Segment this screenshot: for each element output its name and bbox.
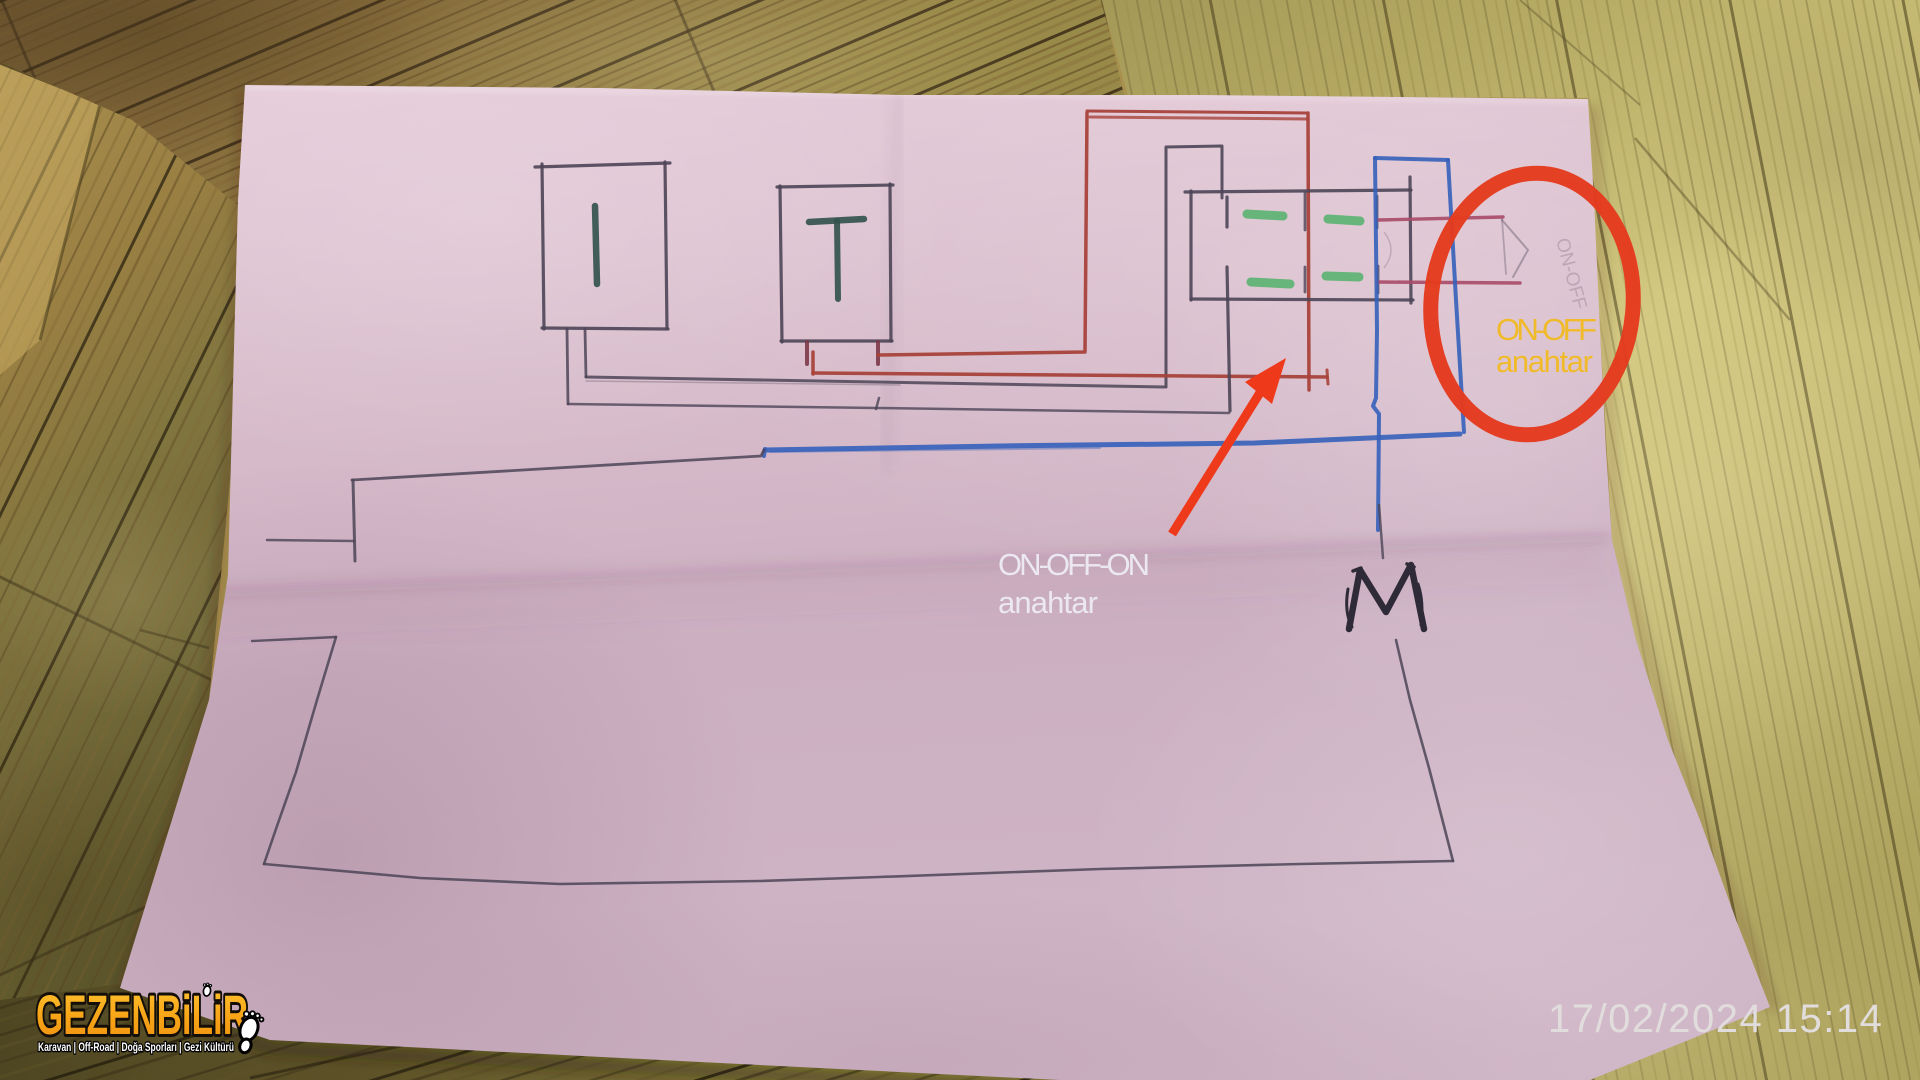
svg-text:17/02/2024 15:14: 17/02/2024 15:14	[1548, 997, 1883, 1041]
svg-text:ON-OFF-ON: ON-OFF-ON	[998, 547, 1150, 582]
svg-text:GEZENBiLiR: GEZENBiLiR	[36, 983, 248, 1046]
svg-text:anahtar: anahtar	[998, 585, 1098, 620]
svg-text:anahtar: anahtar	[1496, 344, 1593, 379]
svg-text:Karavan | Off-Road | Doğa Spor: Karavan | Off-Road | Doğa Sporları | Gez…	[38, 1040, 234, 1054]
svg-text:ON-OFF: ON-OFF	[1496, 312, 1597, 347]
